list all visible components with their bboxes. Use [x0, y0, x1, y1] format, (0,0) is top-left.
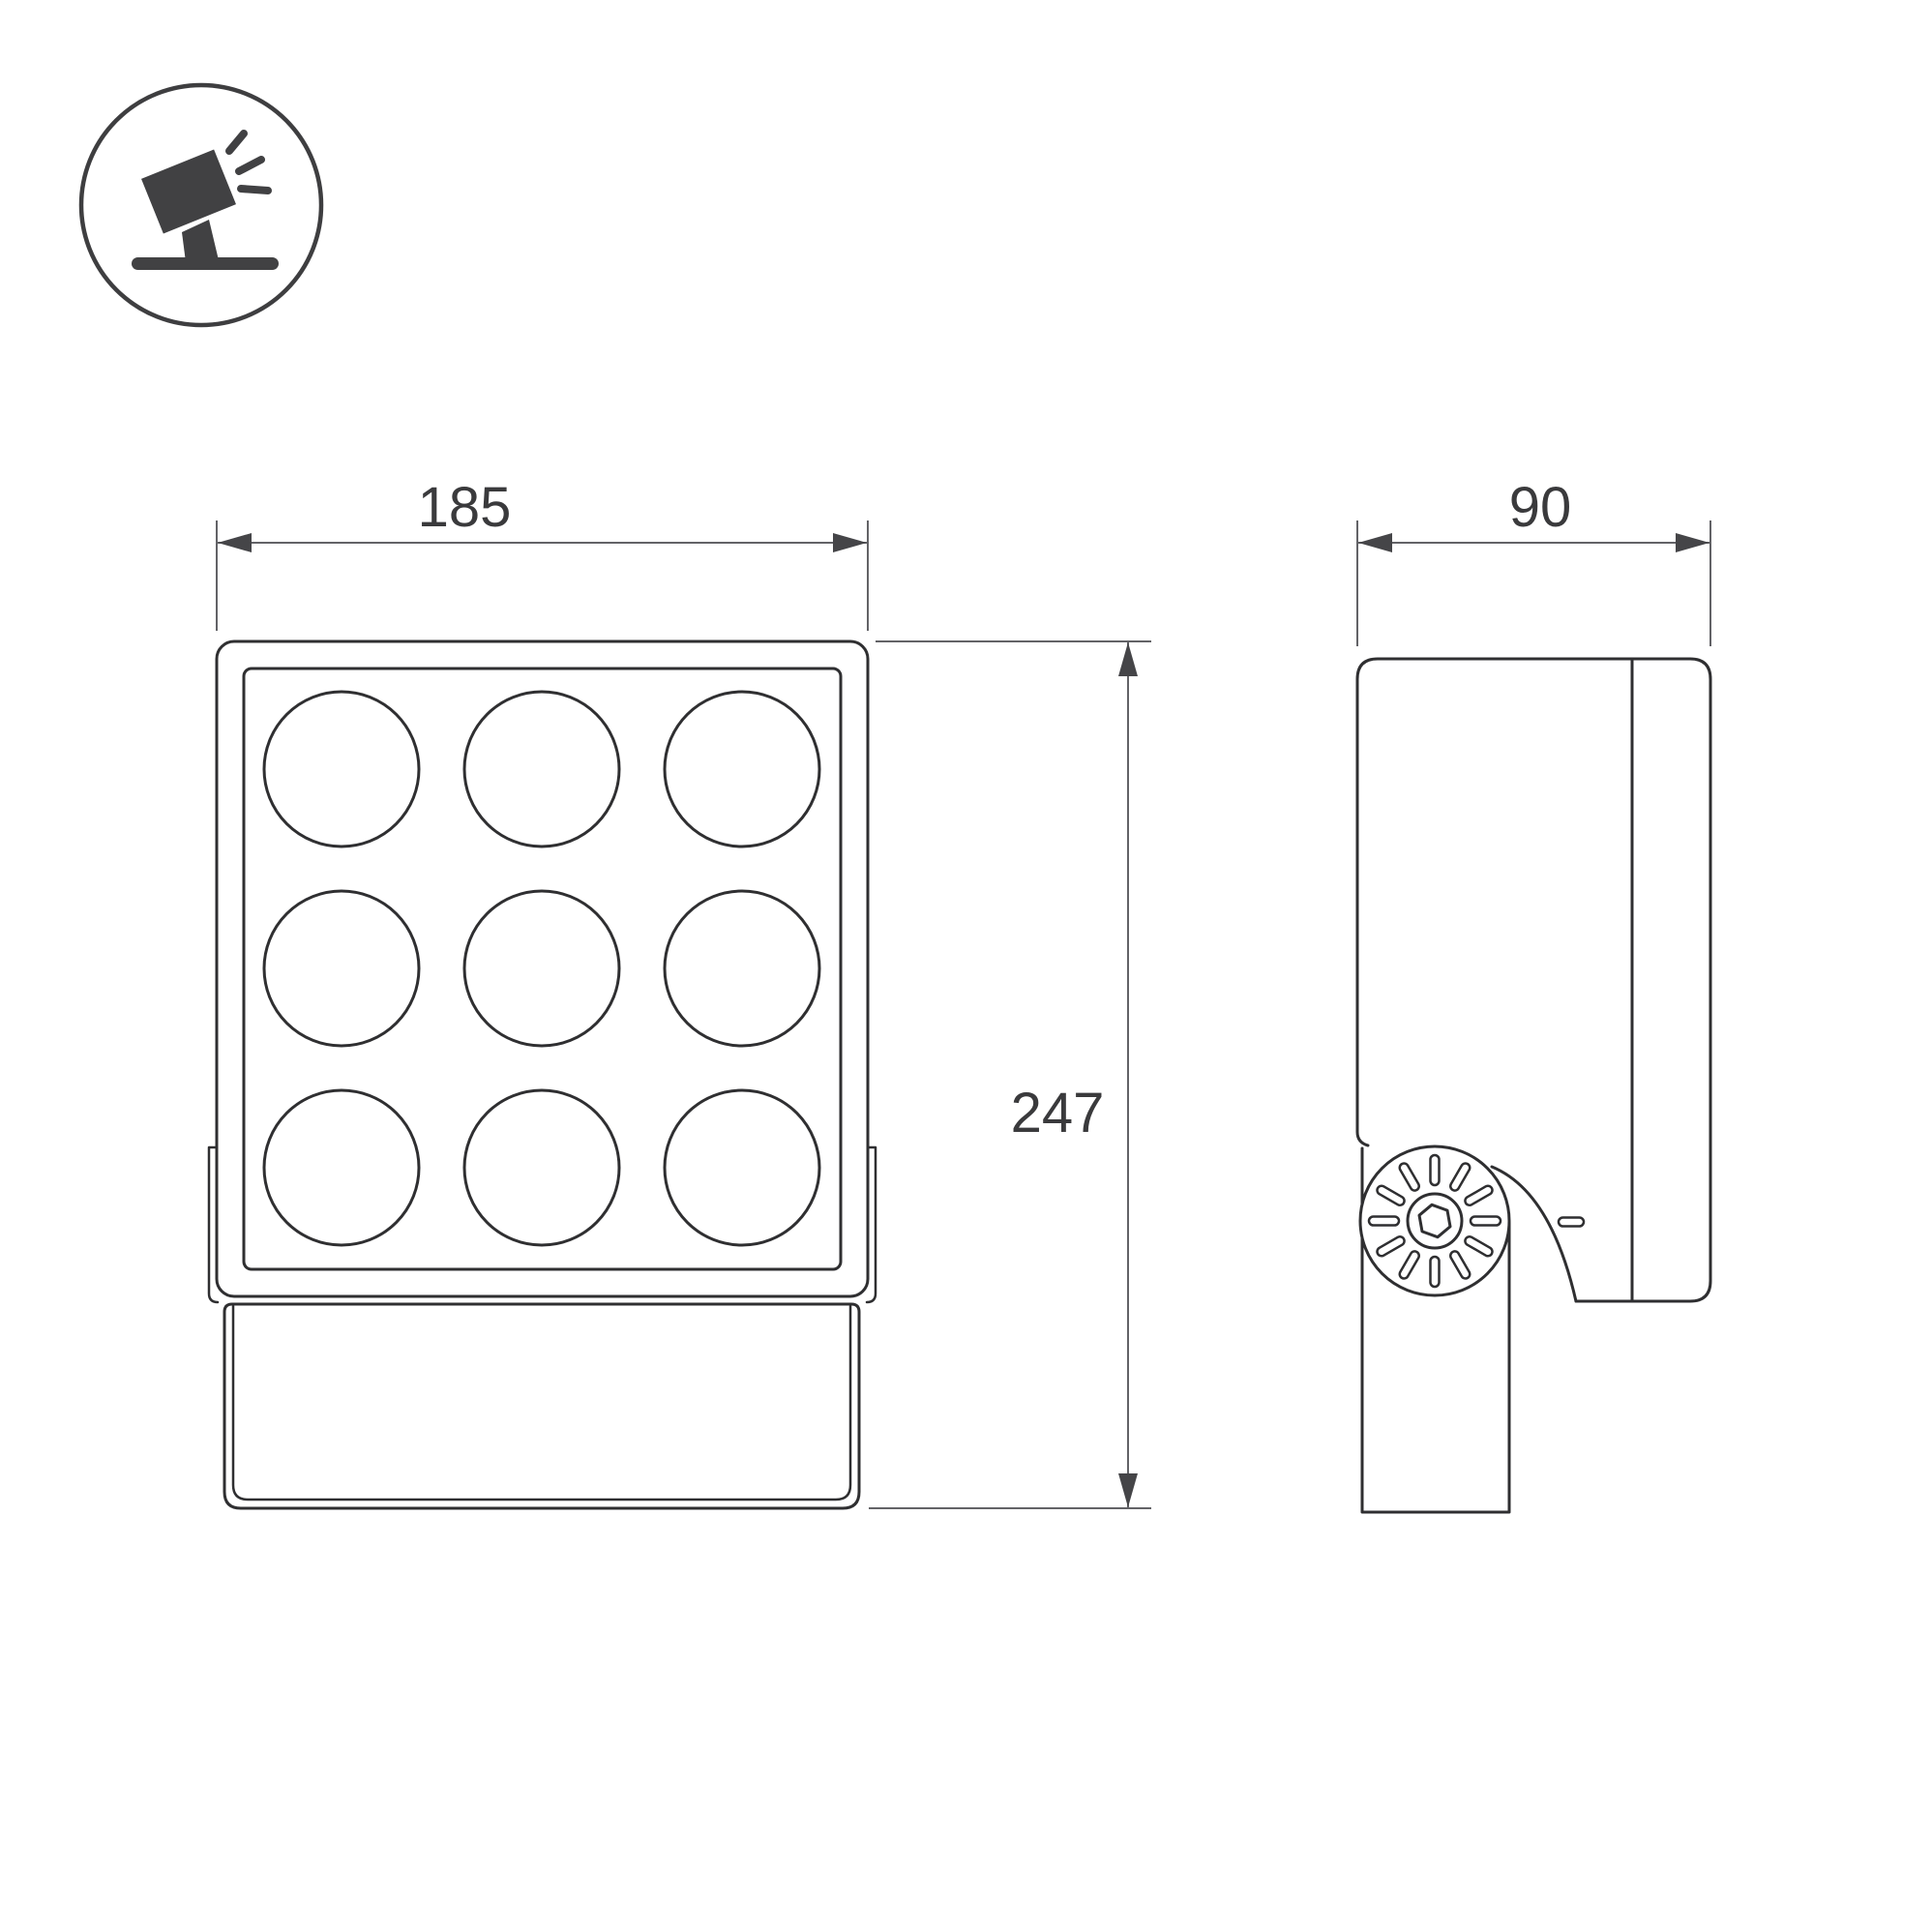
floodlight-post-glyph: [182, 220, 219, 262]
side-view: [1357, 659, 1710, 1512]
lens-circle: [264, 891, 419, 1046]
height-dimension-label: 247: [1011, 1082, 1105, 1144]
front-lens-panel-outline: [244, 669, 841, 1269]
arrowhead-left: [1358, 533, 1392, 552]
arrowhead-right: [1676, 533, 1709, 552]
lens-circle: [665, 891, 819, 1046]
front-view: [209, 641, 876, 1508]
dimension-width-185: 185: [217, 476, 868, 631]
lens-circle: [264, 1090, 419, 1245]
lens-grid-3x3: [264, 692, 819, 1245]
floodlight-dimension-drawing: 185 247 90: [0, 0, 1932, 1932]
lens-circle: [464, 891, 619, 1046]
arrowhead-up: [1118, 642, 1138, 676]
depth-dimension-label: 90: [1509, 476, 1572, 539]
front-driver-box-outline: [224, 1304, 859, 1508]
front-housing-outline: [217, 641, 868, 1296]
knob-outer-circle: [1360, 1146, 1509, 1295]
floodlight-base-glyph: [132, 257, 279, 270]
tilt-adjustment-knob: [1360, 1146, 1509, 1295]
technical-drawing-page: 185 247 90: [0, 0, 1932, 1932]
lens-circle: [264, 692, 419, 847]
tilted-floodlight-on-stand-icon: [81, 85, 321, 325]
width-dimension-label: 185: [418, 476, 512, 539]
lens-circle: [665, 1090, 819, 1245]
light-rays-glyph: [229, 134, 268, 191]
dimension-height-247: 247: [869, 641, 1151, 1508]
front-driver-box-rim: [233, 1306, 850, 1500]
arrowhead-left: [218, 533, 252, 552]
lens-circle: [464, 692, 619, 847]
arrowhead-down: [1118, 1473, 1138, 1507]
lens-circle: [464, 1090, 619, 1245]
lens-circle: [665, 692, 819, 847]
housing-slot-marking: [1559, 1218, 1584, 1227]
arrowhead-right: [833, 533, 867, 552]
dimension-depth-90: 90: [1357, 476, 1710, 646]
floodlight-body-glyph: [141, 150, 236, 234]
